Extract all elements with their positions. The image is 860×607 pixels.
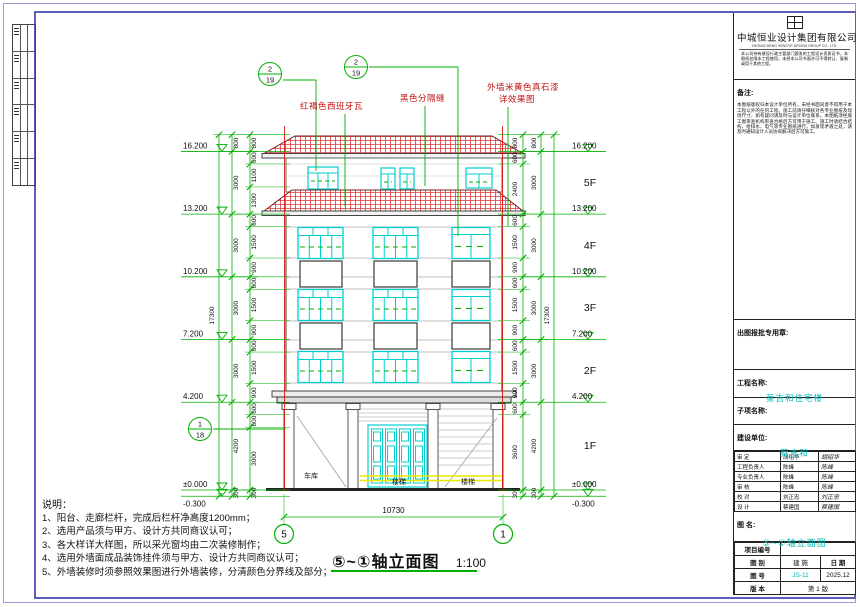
date-label: 日 期 — [821, 556, 856, 569]
svg-text:900: 900 — [251, 387, 258, 398]
signature-cell-sig: 蔡建国 — [819, 502, 856, 512]
svg-text:1: 1 — [500, 530, 506, 541]
drawing-no-label: 图 号 — [735, 569, 781, 582]
category-value: 建 施 — [781, 556, 821, 569]
svg-text:3000: 3000 — [233, 238, 240, 253]
signature-cell-role: 专业负责人 — [735, 472, 781, 482]
svg-text:4.200: 4.200 — [183, 392, 204, 401]
stamp-section: 出图报批专用章: — [734, 320, 855, 370]
svg-text:10.200: 10.200 — [183, 267, 208, 276]
signature-row: 设 计蔡建国蔡建国 — [735, 502, 856, 512]
svg-text:17300: 17300 — [544, 306, 551, 324]
svg-text:5F: 5F — [584, 177, 596, 189]
svg-text:600: 600 — [251, 403, 258, 414]
svg-text:10.200: 10.200 — [572, 267, 597, 276]
svg-text:600: 600 — [251, 215, 258, 226]
svg-text:13.200: 13.200 — [572, 204, 597, 213]
signature-row: 工程负责人陈峰陈峰 — [735, 462, 856, 472]
svg-text:13.200: 13.200 — [183, 204, 208, 213]
drawing-no-value: JS-11 — [781, 569, 821, 582]
svg-text:2: 2 — [354, 58, 358, 67]
signature-row: 审 核陈峰陈峰 — [735, 482, 856, 492]
drawing-title-text: ⑤~①轴立面图 — [332, 554, 439, 571]
signature-cell-name: 陈峰 — [781, 462, 819, 472]
svg-text:800: 800 — [251, 137, 258, 148]
svg-text:3000: 3000 — [251, 451, 258, 466]
note-item: 1、阳台、走廊栏杆，完成后栏杆净高度1200mm； — [42, 512, 352, 525]
svg-text:1100: 1100 — [251, 168, 258, 182]
svg-text:600: 600 — [512, 152, 519, 163]
sub-project-section: 子项名称: — [734, 398, 855, 425]
svg-text:600: 600 — [251, 415, 258, 426]
drawing-name-label: 图 名: — [737, 522, 755, 529]
svg-text:1500: 1500 — [512, 297, 519, 312]
drawing-title-underline — [331, 570, 477, 572]
annotation-paint-line1: 外墙米黄色真石漆 — [487, 81, 559, 93]
signature-row: 专业负责人陈峰陈峰 — [735, 472, 856, 482]
svg-text:1500: 1500 — [512, 360, 519, 375]
svg-text:800: 800 — [512, 137, 519, 148]
project-name-section: 工程名称: 蔡吉和住宅楼 — [734, 370, 855, 398]
svg-text:19: 19 — [266, 76, 274, 85]
svg-text:600: 600 — [251, 152, 258, 163]
drawing-name-value: ⑤~①轴立面图 — [737, 536, 852, 549]
svg-text:2F: 2F — [584, 365, 596, 377]
date-value: 2025.12 — [821, 569, 856, 582]
svg-text:2: 2 — [268, 65, 272, 74]
signature-cell-sig: 陈峰 — [819, 462, 856, 472]
svg-text:900: 900 — [251, 324, 258, 335]
signature-cell-sig: 陈峰 — [819, 472, 856, 482]
svg-text:3000: 3000 — [531, 301, 538, 316]
svg-text:3000: 3000 — [233, 363, 240, 378]
svg-text:1500: 1500 — [251, 297, 258, 312]
svg-text:3F: 3F — [584, 302, 596, 314]
annotation-seam: 黑色分隔缝 — [400, 92, 445, 104]
svg-text:18: 18 — [196, 431, 204, 440]
signature-cell-role: 校 对 — [735, 492, 781, 502]
client-section: 建设单位: 蔡吉和 — [734, 425, 855, 451]
signature-table: 审 定胡绍华胡绍华工程负责人陈峰陈峰专业负责人陈峰陈峰审 核陈峰陈峰校 对刘正忠… — [734, 451, 856, 512]
svg-text:2400: 2400 — [512, 181, 519, 196]
room-label-garage: 车库 — [304, 471, 318, 481]
company-name: 中城恒业设计集团有限公司 — [737, 30, 852, 44]
certificate-text: 本公司持有建设行政主管部门颁发的工程设计资质证书，本图纸仅限本工程使用，未经本公… — [737, 52, 852, 66]
room-label-shop: 楼梯 — [461, 477, 475, 487]
svg-text:4.200: 4.200 — [572, 392, 593, 401]
drawing-sheet: { "drawing_title": { "name": "⑤~①轴立面图", … — [0, 0, 860, 607]
company-section: 中城恒业设计集团有限公司 ZHONGCHENG HENGYE DESIGN GR… — [734, 13, 855, 80]
remark-text: 本图纸版权归本设计单位所有，未经书面同意不得用于本工程以外的任何工程。施工前请仔… — [737, 102, 852, 134]
client-label: 建设单位: — [737, 435, 767, 442]
svg-text:3000: 3000 — [531, 175, 538, 190]
notes-block: 说明： 1、阳台、走廊栏杆，完成后栏杆净高度1200mm；2、选用产品须与甲方、… — [42, 496, 352, 579]
note-item: 4、选用外墙面成品装饰挂件须与甲方、设计方共同商议认可； — [42, 552, 352, 565]
remark-label: 备注: — [737, 90, 753, 97]
svg-text:19: 19 — [352, 69, 360, 78]
svg-text:900: 900 — [251, 262, 258, 273]
version-value: 第 1 版 — [781, 582, 856, 595]
title-block: 中城恒业设计集团有限公司 ZHONGCHENG HENGYE DESIGN GR… — [733, 13, 855, 595]
svg-text:600: 600 — [512, 215, 519, 226]
note-item: 3、各大样详大样图，所以采光窗均由二次装修制作； — [42, 539, 352, 552]
svg-text:4F: 4F — [584, 240, 596, 252]
svg-text:800: 800 — [531, 137, 538, 148]
svg-text:300: 300 — [512, 487, 519, 498]
svg-text:10730: 10730 — [382, 506, 405, 515]
signature-cell-name: 陈峰 — [781, 482, 819, 492]
svg-text:300: 300 — [531, 487, 538, 498]
svg-text:±0.000: ±0.000 — [183, 480, 208, 489]
svg-text:7.200: 7.200 — [572, 330, 593, 339]
svg-text:17300: 17300 — [209, 306, 216, 324]
svg-text:900: 900 — [512, 262, 519, 273]
signature-cell-name: 蔡建国 — [781, 502, 819, 512]
svg-text:900: 900 — [512, 324, 519, 335]
drawing-title: ⑤~①轴立面图 1:100 — [332, 548, 486, 572]
drawing-name-section: 图 名: ⑤~①轴立面图 — [734, 512, 855, 542]
svg-text:800: 800 — [233, 137, 240, 148]
signature-cell-name: 陈峰 — [781, 472, 819, 482]
company-name-en: ZHONGCHENG HENGYE DESIGN GROUP CO., LTD. — [739, 44, 850, 50]
project-name-label: 工程名称: — [737, 380, 767, 387]
note-item: 2、选用产品须与甲方、设计方共同商议认可； — [42, 525, 352, 538]
svg-text:900: 900 — [512, 387, 519, 398]
signature-cell-sig: 刘正忠 — [819, 492, 856, 502]
version-label: 版 本 — [735, 582, 781, 595]
svg-text:600: 600 — [512, 340, 519, 351]
svg-text:600: 600 — [512, 403, 519, 414]
svg-text:3000: 3000 — [233, 301, 240, 316]
svg-text:±0.000: ±0.000 — [572, 480, 597, 489]
category-label: 图 别 — [735, 556, 781, 569]
svg-text:-0.300: -0.300 — [572, 499, 595, 508]
svg-text:16.200: 16.200 — [572, 141, 597, 150]
signature-cell-role: 设 计 — [735, 502, 781, 512]
svg-text:4200: 4200 — [233, 438, 240, 453]
drawing-info-table: 项目编号 图 别 建 施 日 期 图 号 JS-11 2025.12 版 本 第… — [734, 542, 856, 595]
sub-project-label: 子项名称: — [737, 408, 767, 415]
svg-text:3000: 3000 — [531, 238, 538, 253]
drawing-scale: 1:100 — [456, 556, 486, 570]
svg-text:600: 600 — [251, 277, 258, 288]
note-item: 5、外墙装修时须参照效果图进行外墙装修，分清颜色分界线及部分； — [42, 566, 352, 579]
svg-text:7.200: 7.200 — [183, 330, 204, 339]
client-value: 蔡吉和 — [737, 447, 852, 459]
notes-list: 1、阳台、走廊栏杆，完成后栏杆净高度1200mm；2、选用产品须与甲方、设计方共… — [42, 512, 352, 579]
remark-section: 备注: 本图纸版权归本设计单位所有，未经书面同意不得用于本工程以外的任何工程。施… — [734, 80, 855, 320]
svg-text:1300: 1300 — [251, 193, 258, 208]
svg-text:3000: 3000 — [233, 175, 240, 190]
svg-text:4200: 4200 — [531, 438, 538, 453]
svg-text:1: 1 — [198, 420, 202, 429]
svg-text:1F: 1F — [584, 440, 596, 452]
signature-cell-role: 工程负责人 — [735, 462, 781, 472]
notes-title: 说明： — [42, 496, 352, 511]
svg-text:1500: 1500 — [251, 360, 258, 375]
company-logo-icon — [787, 16, 803, 29]
signature-cell-name: 刘正忠 — [781, 492, 819, 502]
svg-text:1500: 1500 — [512, 235, 519, 250]
svg-text:600: 600 — [512, 277, 519, 288]
svg-text:600: 600 — [251, 340, 258, 351]
room-label-entry: 楼梯 — [392, 477, 406, 487]
svg-text:1500: 1500 — [251, 235, 258, 250]
signature-row: 校 对刘正忠刘正忠 — [735, 492, 856, 502]
signature-cell-sig: 陈峰 — [819, 482, 856, 492]
signature-cell-role: 审 核 — [735, 482, 781, 492]
stamp-label: 出图报批专用章: — [737, 330, 788, 337]
svg-text:3000: 3000 — [531, 363, 538, 378]
annotation-paint-line2: 详效果图 — [499, 93, 535, 105]
svg-text:16.200: 16.200 — [183, 141, 208, 150]
annotation-roof-tile: 红褐色西班牙瓦 — [300, 100, 363, 112]
svg-text:3600: 3600 — [512, 445, 519, 460]
